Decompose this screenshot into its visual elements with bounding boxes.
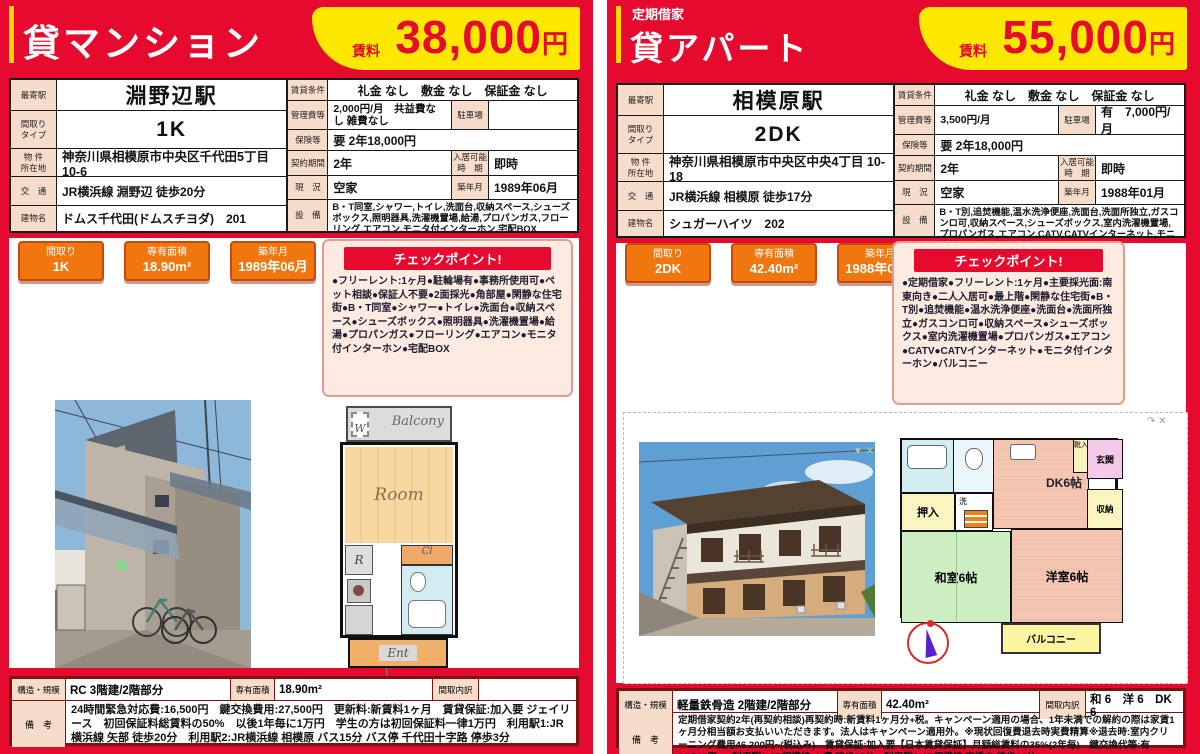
- title-accent-bar: [9, 6, 14, 63]
- built-value: 1988年01月: [1096, 181, 1184, 204]
- station-label: 最寄駅: [618, 85, 664, 115]
- floorplan-balcony-label: Balcony: [392, 414, 444, 429]
- frame-controls: ↷ ✕: [1147, 416, 1167, 427]
- notes-label: 備 考: [619, 713, 673, 754]
- contract-value: 2年: [935, 156, 1058, 180]
- movein-label: 入居可能 時 期: [451, 151, 489, 175]
- floorplan-storage: 収納: [1087, 489, 1123, 529]
- exterior-photo: [639, 442, 875, 636]
- station-value: 相模原駅: [664, 85, 893, 115]
- parking-value: [489, 101, 577, 129]
- floorplan-balcony: バルコニー: [1001, 623, 1101, 654]
- rent-amount: 55,000円: [1002, 10, 1175, 64]
- rooms-label: 間取内訳: [433, 679, 479, 700]
- badge-label: 築年月: [232, 247, 314, 259]
- rent-label: 賃料: [352, 41, 380, 61]
- mgmt-label: 管理費等: [895, 106, 935, 134]
- property-info-table: 最寄駅淵野辺駅 間取り タイプ1K 物 件 所在地神奈川県相模原市中央区千代田5…: [9, 78, 579, 233]
- structure-value: RC 3階建/2階部分: [66, 679, 231, 700]
- badge-layout: 間取り1K: [18, 241, 104, 281]
- checkpoint-body: ●フリーレント:1ヶ月●駐輪場有●事務所使用可●ペット相談●保証人不要●2面採光…: [332, 275, 563, 356]
- badge-label: 専有面積: [126, 247, 208, 259]
- badge-layout: 間取り2DK: [625, 243, 711, 283]
- layout-label: 間取り タイプ: [11, 111, 57, 148]
- status-label: 現 況: [895, 181, 935, 204]
- floorplan-bathroom: [901, 439, 955, 493]
- mgmt-value: 3,500円/月: [935, 106, 1058, 134]
- floorplan-yoshitsu: 洋室6帖: [1011, 529, 1123, 623]
- area-value: 18.90m²: [275, 679, 433, 700]
- insurance-value: 要 2年18,000円: [935, 135, 1184, 155]
- floorplan-2dk: DK6帖 靴入 玄関 押入 洗 収納 和室6帖 洋室6帖 バルコニー: [900, 438, 1118, 618]
- contract-label: 契約期間: [895, 156, 935, 180]
- insurance-label: 保険等: [288, 130, 328, 150]
- exterior-photo: [55, 400, 251, 668]
- floorplan-genkan: 玄関: [1087, 439, 1123, 479]
- equip-label: 設 備: [895, 205, 935, 236]
- summary-row1: 構造・規模 RC 3階建/2階部分 専有面積 18.90m² 間取内訳: [12, 679, 576, 701]
- building-label: 建物名: [618, 211, 664, 236]
- floorplan-toilet: [410, 572, 426, 592]
- badge-value: 18.90m²: [126, 259, 208, 276]
- info-table-left: 最寄駅淵野辺駅 間取り タイプ1K 物 件 所在地神奈川県相模原市中央区千代田5…: [11, 80, 288, 231]
- compass-north-dot: [927, 620, 934, 627]
- photo-controls: ▼ ✕: [853, 446, 874, 457]
- floorplan-kitchen-sink: [1010, 444, 1036, 460]
- structure-label: 構造・規模: [12, 679, 66, 700]
- built-value: 1989年06月: [489, 176, 577, 199]
- checkpoint-box: チェックポイント! ●定期借家●フリーレント:1ヶ月●主要採光面:南東向き●二人…: [892, 241, 1125, 405]
- badge-label: 間取り: [627, 249, 709, 261]
- exterior-photo-art: [639, 442, 875, 636]
- rent-unit: 円: [542, 29, 568, 59]
- parking-value: 有 7,000円/月: [1096, 106, 1184, 134]
- parking-label: 駐車場: [1058, 106, 1096, 134]
- floorplan-1k: W Balcony Room R Cl Ent: [340, 406, 458, 670]
- contract-label: 契約期間: [288, 151, 328, 175]
- property-category: 貸アパート: [630, 22, 809, 70]
- station-label: 最寄駅: [11, 80, 57, 110]
- access-label: 交 通: [618, 182, 664, 210]
- floorplan-entrance: Ent: [348, 638, 448, 668]
- floorplan-dk-label: DK6帖: [1046, 474, 1082, 491]
- floorplan-bathtub: [408, 600, 446, 628]
- floorplan-balcony: W Balcony: [346, 406, 452, 442]
- insurance-label: 保険等: [895, 135, 935, 155]
- built-label: 築年月: [451, 176, 489, 199]
- contract-value: 2年: [328, 151, 451, 175]
- rent-amount: 38,000円: [395, 10, 568, 64]
- layout-value: 2DK: [664, 116, 893, 153]
- badge-value: 1K: [20, 259, 102, 276]
- rooms-value: [479, 679, 576, 700]
- badge-value: 42.40m²: [733, 261, 815, 278]
- terms-label: 賃貸条件: [288, 80, 328, 100]
- insurance-value: 要 2年18,000円: [328, 130, 577, 150]
- notes-label: 備 考: [12, 701, 66, 747]
- layout-label: 間取り タイプ: [618, 116, 664, 153]
- flyer-left: 貸マンション 賃料 38,000円 最寄駅淵野辺駅 間取り タイプ1K 物 件 …: [0, 0, 593, 754]
- rent-price-box: 賃料 55,000円: [919, 7, 1187, 70]
- compass-icon: [907, 622, 949, 664]
- floorplan-closet: Cl: [401, 545, 453, 565]
- status-value: 空家: [328, 176, 451, 199]
- floorplan-toilet-room: [953, 439, 995, 493]
- summary-table: 構造・規模 軽量鉄骨造 2階建/2階部分 専有面積 42.40m² 間取内訳 和…: [616, 688, 1186, 748]
- floorplan-entrance-label: Ent: [379, 645, 416, 661]
- building-value: シュガーハイツ 202: [664, 211, 893, 236]
- checkpoint-box: チェックポイント! ●フリーレント:1ヶ月●駐輪場有●事務所使用可●ペット相談●…: [322, 239, 573, 397]
- flyer-right: 定期借家 貸アパート 賃料 55,000円 最寄駅相模原駅 間取り タイプ2DK…: [607, 0, 1200, 754]
- address-label: 物 件 所在地: [618, 154, 664, 181]
- info-table-left: 最寄駅相模原駅 間取り タイプ2DK 物 件 所在地神奈川県相模原市中央区中央4…: [618, 85, 895, 236]
- floorplan-washitsu: 和室6帖: [901, 531, 1011, 623]
- mgmt-value: 2,000円/月 共益費なし 雑費なし: [328, 101, 451, 129]
- notes-value: 24時間緊急対応費:16,500円 鍵交換費用:27,500円 更新料:新賃料1…: [66, 701, 576, 747]
- info-table-right: 賃貸条件礼金 なし 敷金 なし 保証金 なし 管理費等3,500円/月駐車場有 …: [895, 85, 1184, 236]
- address-label: 物 件 所在地: [11, 149, 57, 176]
- badge-area: 専有面積18.90m²: [124, 241, 210, 281]
- status-label: 現 況: [288, 176, 328, 199]
- movein-label: 入居可能 時 期: [1058, 156, 1096, 180]
- badge-built: 築年月1989年06月: [230, 241, 316, 281]
- building-label: 建物名: [11, 206, 57, 231]
- floorplan-bathroom: [401, 565, 453, 635]
- access-value: JR横浜線 相模原 徒歩17分: [664, 182, 893, 210]
- badge-label: 間取り: [20, 247, 102, 259]
- movein-value: 即時: [489, 151, 577, 175]
- exterior-photo-art: [55, 400, 251, 668]
- rent-price-box: 賃料 38,000円: [312, 7, 580, 70]
- terms-label: 賃貸条件: [895, 85, 935, 105]
- checkpoint-title: チェックポイント!: [914, 249, 1103, 272]
- address-value: 神奈川県相模原市中央区中央4丁目 10-18: [664, 154, 893, 181]
- rent-number: 38,000: [395, 11, 542, 63]
- movein-value: 即時: [1096, 156, 1184, 180]
- equip-label: 設 備: [288, 200, 328, 231]
- compass-needle: [919, 628, 937, 658]
- access-label: 交 通: [11, 177, 57, 205]
- badge-row: 間取り1K 専有面積18.90m² 築年月1989年06月: [18, 241, 316, 281]
- badge-value: 2DK: [627, 261, 709, 278]
- notes-value: 定期借家契約2年(再契約相談)再契約時:新賃料1ヶ月分+税。キャンペーン適用の場…: [673, 713, 1183, 754]
- floorplan-bathtub: [907, 445, 947, 469]
- equip-value: B・T別,追焚機能,温水洗浄便座,洗面台,洗面所独立,ガスコンロ可,収納スペース…: [935, 205, 1184, 236]
- badge-area: 専有面積42.40m²: [731, 243, 817, 283]
- station-value: 淵野辺駅: [57, 80, 286, 110]
- area-label: 専有面積: [231, 679, 275, 700]
- terms-value: 礼金 なし 敷金 なし 保証金 なし: [935, 85, 1184, 105]
- layout-value: 1K: [57, 111, 286, 148]
- building-value: ドムス千代田(ドムスチヨダ) 201: [57, 206, 286, 231]
- rent-label: 賃料: [959, 41, 987, 61]
- rent-unit: 円: [1149, 29, 1175, 59]
- summary-row1: 構造・規模 軽量鉄骨造 2階建/2階部分 専有面積 42.40m² 間取内訳 和…: [619, 691, 1183, 713]
- title-accent-bar: [616, 6, 621, 63]
- badge-row: 間取り2DK 専有面積42.40m² 築年月1988年01月: [625, 243, 923, 283]
- flyer-page: 貸マンション 賃料 38,000円 最寄駅淵野辺駅 間取り タイプ1K 物 件 …: [0, 0, 1200, 754]
- badge-label: 専有面積: [733, 249, 815, 261]
- badge-value: 1989年06月: [232, 259, 314, 276]
- floorplan-unit: Room R Cl: [340, 442, 458, 638]
- rent-number: 55,000: [1002, 11, 1149, 63]
- floorplan-stove: [347, 579, 371, 603]
- summary-row2: 備 考 定期借家契約2年(再契約相談)再契約時:新賃料1ヶ月分+税。キャンペーン…: [619, 713, 1183, 754]
- terms-value: 礼金 なし 敷金 なし 保証金 なし: [328, 80, 577, 100]
- parking-label: 駐車場: [451, 101, 489, 129]
- status-value: 空家: [935, 181, 1058, 204]
- equip-value: B・T同室,シャワー,トイレ,洗面台,収納スペース,シューズボックス,照明器具,…: [328, 200, 577, 231]
- floorplan-washer: W: [351, 412, 369, 437]
- floorplan-room: Room: [345, 447, 453, 543]
- floorplan-oshiire: 押入: [901, 493, 955, 531]
- property-category: 貸マンション: [23, 13, 263, 67]
- info-table-right: 賃貸条件礼金 なし 敷金 なし 保証金 なし 管理費等2,000円/月 共益費な…: [288, 80, 577, 231]
- summary-table: 構造・規模 RC 3階建/2階部分 専有面積 18.90m² 間取内訳 備 考 …: [9, 676, 579, 746]
- mgmt-label: 管理費等: [288, 101, 328, 129]
- checkpoint-title: チェックポイント!: [344, 247, 551, 270]
- floorplan-counter: [345, 605, 373, 635]
- address-value: 神奈川県相模原市中央区千代田5丁目10-6: [57, 149, 286, 176]
- floorplan-laundry: 洗: [955, 493, 993, 531]
- access-value: JR横浜線 淵野辺 徒歩20分: [57, 177, 286, 205]
- built-label: 築年月: [1058, 181, 1096, 204]
- lease-type-label: 定期借家: [632, 4, 684, 23]
- floorplan-room-label: Room: [374, 485, 423, 505]
- checkpoint-body: ●定期借家●フリーレント:1ヶ月●主要採光面:南東向き●二人入居可●最上階●閑静…: [902, 277, 1115, 372]
- floorplan-fridge: R: [345, 545, 373, 575]
- property-info-table: 最寄駅相模原駅 間取り タイプ2DK 物 件 所在地神奈川県相模原市中央区中央4…: [616, 83, 1186, 238]
- summary-row2: 備 考 24時間緊急対応費:16,500円 鍵交換費用:27,500円 更新料:…: [12, 701, 576, 747]
